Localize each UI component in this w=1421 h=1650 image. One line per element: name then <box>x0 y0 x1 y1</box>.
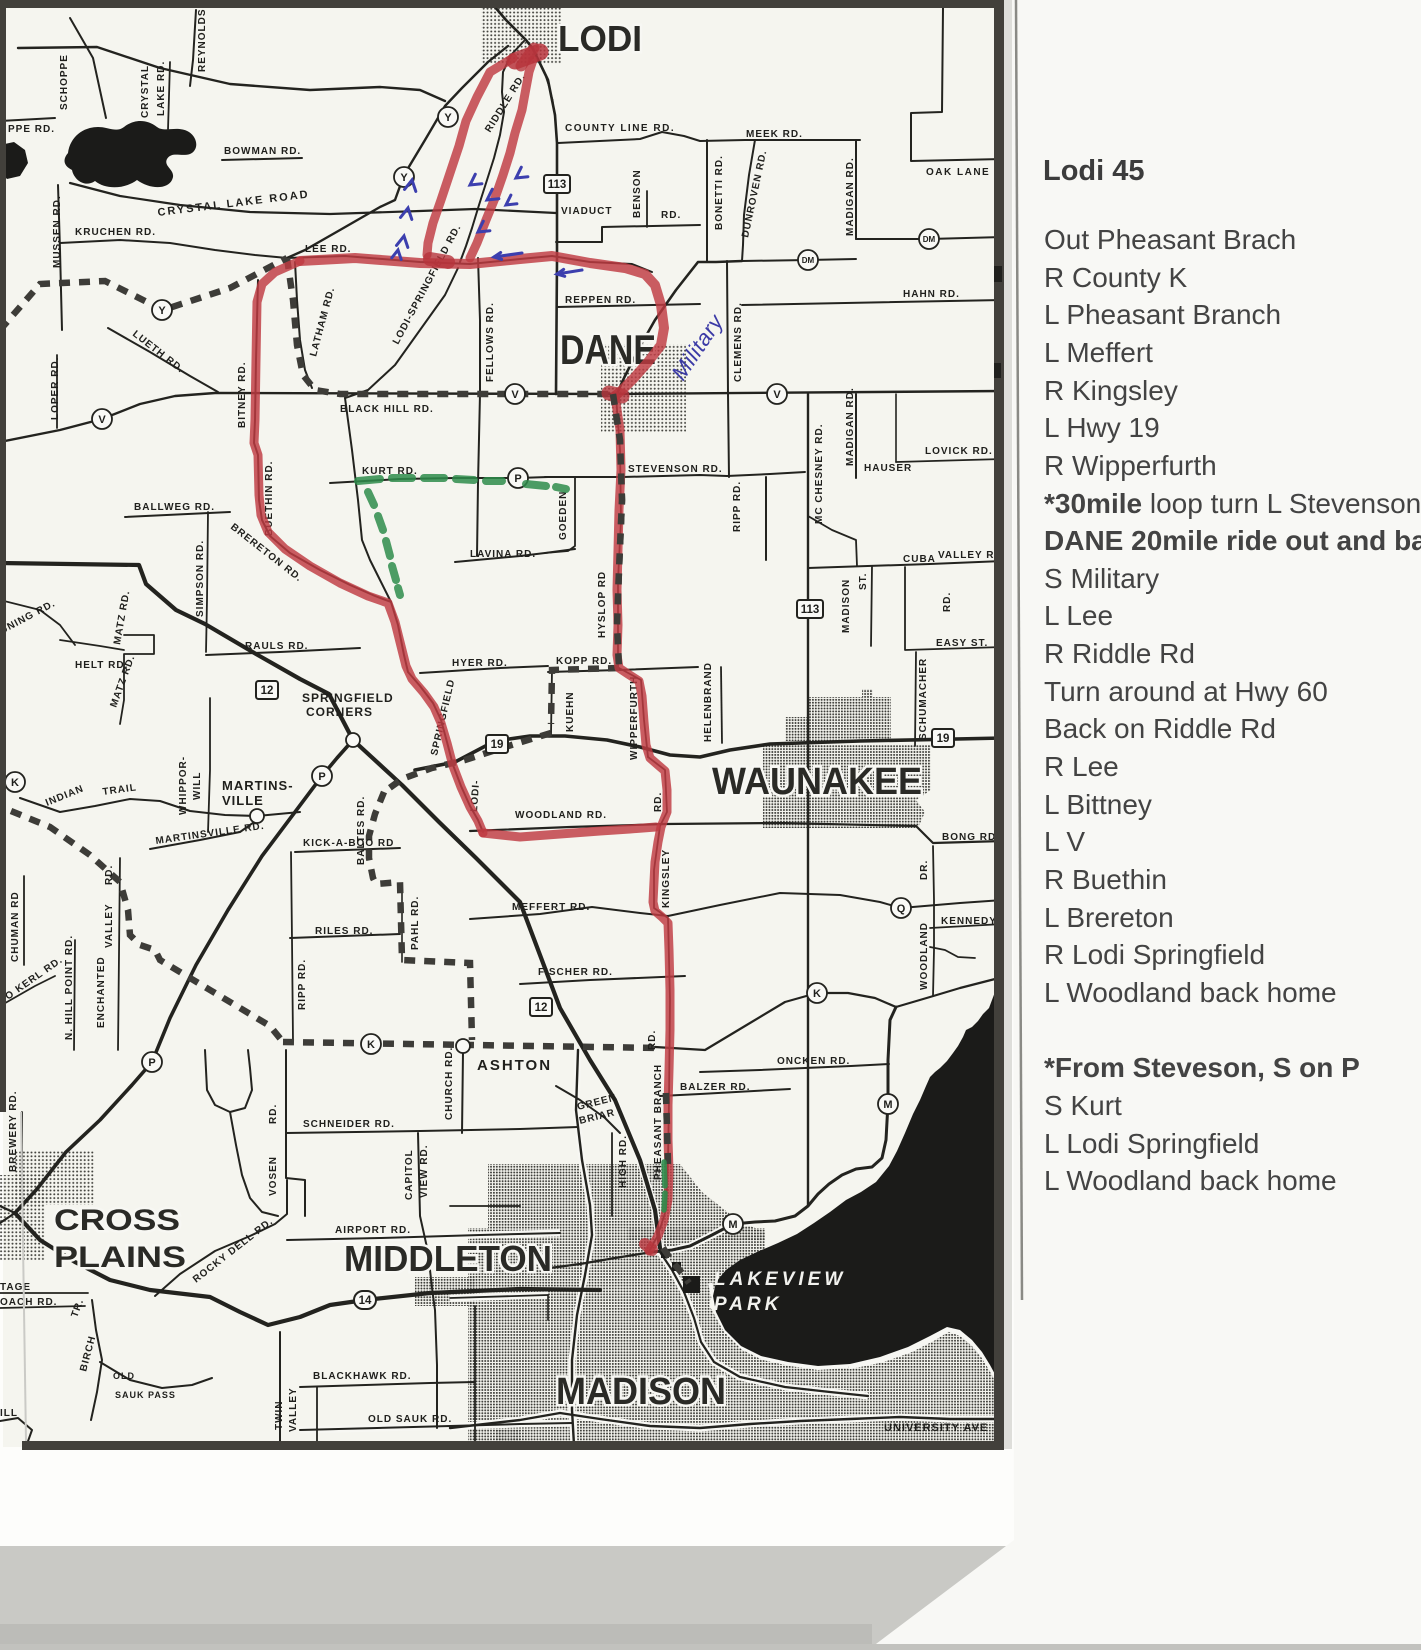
svg-text:MC CHESNEY RD.: MC CHESNEY RD. <box>814 424 825 525</box>
svg-text:DM: DM <box>923 235 936 244</box>
svg-text:CHUMAN RD: CHUMAN RD <box>10 891 21 962</box>
svg-text:HELT RD.: HELT RD. <box>75 660 128 671</box>
svg-text:Y: Y <box>400 172 408 184</box>
svg-text:HAUSER: HAUSER <box>864 463 912 474</box>
svg-text:FELLOWS RD.: FELLOWS RD. <box>485 302 496 382</box>
svg-text:M: M <box>883 1099 892 1111</box>
svg-text:SAUK PASS: SAUK PASS <box>115 1390 176 1400</box>
svg-text:L Lodi Springfield: L Lodi Springfield <box>1044 1128 1259 1159</box>
svg-text:RD.: RD. <box>268 1104 279 1124</box>
svg-text:KICK-A-BOO RD: KICK-A-BOO RD <box>303 838 394 849</box>
svg-text:LOPER RD.: LOPER RD. <box>50 357 61 420</box>
svg-text:BALLWEG RD.: BALLWEG RD. <box>134 502 215 513</box>
svg-text:L Hwy 19: L Hwy 19 <box>1044 412 1160 443</box>
svg-text:PARK: PARK <box>714 1294 782 1315</box>
svg-text:*From Steveson, S on P: *From Steveson, S on P <box>1044 1052 1360 1083</box>
svg-text:MEFFERT RD.: MEFFERT RD. <box>512 902 590 913</box>
svg-text:BONETTI RD.: BONETTI RD. <box>714 155 725 230</box>
svg-text:FISCHER RD.: FISCHER RD. <box>538 967 613 978</box>
svg-text:BALZER RD.: BALZER RD. <box>680 1082 751 1093</box>
svg-text:Back on Riddle Rd: Back on Riddle Rd <box>1044 713 1276 744</box>
svg-text:14: 14 <box>359 1295 372 1307</box>
svg-text:RD.: RD. <box>942 592 953 612</box>
svg-text:REYNOLDS: REYNOLDS <box>197 8 208 72</box>
svg-text:L Woodland back home: L Woodland back home <box>1044 1165 1337 1196</box>
svg-text:113: 113 <box>548 179 567 191</box>
svg-text:MADISON: MADISON <box>556 1371 726 1413</box>
svg-text:GOEDEN: GOEDEN <box>558 491 569 540</box>
svg-text:AIRPORT RD.: AIRPORT RD. <box>335 1225 411 1236</box>
svg-text:L Lee: L Lee <box>1044 600 1113 631</box>
svg-text:WHIPPOR-: WHIPPOR- <box>178 756 189 815</box>
svg-text:KRUCHEN RD.: KRUCHEN RD. <box>75 227 156 238</box>
svg-text:MADIGAN RD.: MADIGAN RD. <box>845 387 856 466</box>
svg-text:WOODLAND: WOODLAND <box>919 922 930 990</box>
svg-text:PLAINS: PLAINS <box>54 1241 186 1274</box>
svg-text:L Woodland back home: L Woodland back home <box>1044 977 1337 1008</box>
svg-text:S Military: S Military <box>1044 563 1159 594</box>
svg-text:ILL: ILL <box>0 1408 18 1419</box>
svg-text:SPRINGFIELD: SPRINGFIELD <box>302 691 394 705</box>
svg-text:OACH RD.: OACH RD. <box>0 1297 57 1308</box>
svg-text:ONCKEN RD.: ONCKEN RD. <box>777 1056 850 1067</box>
svg-text:RIPP RD.: RIPP RD. <box>297 959 308 1010</box>
svg-text:STEVENSON RD.: STEVENSON RD. <box>628 464 723 475</box>
svg-text:SCHOPPE: SCHOPPE <box>59 54 70 110</box>
svg-text:SIMPSON RD.: SIMPSON RD. <box>195 540 206 617</box>
svg-text:DR.: DR. <box>919 860 930 880</box>
svg-text:BLACK HILL RD.: BLACK HILL RD. <box>340 404 434 415</box>
svg-text:HELENBRAND: HELENBRAND <box>703 662 714 742</box>
svg-text:VALLEY: VALLEY <box>104 903 115 948</box>
svg-text:MEEK RD.: MEEK RD. <box>746 129 803 140</box>
svg-text:*30mile loop turn L Stevenson: *30mile loop turn L Stevenson <box>1044 488 1421 519</box>
svg-text:CRYSTAL: CRYSTAL <box>140 65 151 118</box>
svg-text:Turn around at Hwy 60: Turn around at Hwy 60 <box>1044 676 1328 707</box>
svg-text:K: K <box>813 988 821 1000</box>
svg-text:R Buethin: R Buethin <box>1044 864 1167 895</box>
svg-text:REPPEN RD.: REPPEN RD. <box>565 295 636 306</box>
svg-text:HIGH RD.: HIGH RD. <box>618 1135 629 1188</box>
svg-text:PAHL RD.: PAHL RD. <box>410 896 421 950</box>
svg-text:RIPP RD.: RIPP RD. <box>732 481 743 532</box>
svg-text:L Bittney: L Bittney <box>1044 789 1152 820</box>
svg-text:R Riddle Rd: R Riddle Rd <box>1044 638 1195 669</box>
svg-text:V: V <box>511 389 519 401</box>
svg-text:BREWERY RD.: BREWERY RD. <box>8 1090 19 1172</box>
svg-text:DANE 20mile ride out and back: DANE 20mile ride out and back <box>1044 525 1421 556</box>
svg-text:L Brereton: L Brereton <box>1044 902 1174 933</box>
svg-text:L Pheasant Branch: L Pheasant Branch <box>1044 299 1281 330</box>
svg-text:KENNEDY: KENNEDY <box>941 916 997 927</box>
svg-text:R County K: R County K <box>1044 262 1187 293</box>
svg-text:12: 12 <box>535 1002 548 1014</box>
svg-text:UNIVERSITY AVE: UNIVERSITY AVE <box>884 1422 988 1434</box>
svg-text:MIDDLETON: MIDDLETON <box>344 1238 552 1279</box>
svg-text:N. HILL POINT RD.: N. HILL POINT RD. <box>64 935 75 1040</box>
svg-text:RD.: RD. <box>647 1030 658 1050</box>
svg-text:ST.: ST. <box>858 573 869 590</box>
svg-text:Y: Y <box>444 112 452 124</box>
svg-text:LOVICK RD.: LOVICK RD. <box>925 446 993 457</box>
svg-text:V: V <box>773 389 781 401</box>
svg-text:R Kingsley: R Kingsley <box>1044 375 1178 406</box>
svg-text:CORNERS: CORNERS <box>306 705 373 719</box>
svg-text:LAKEVIEW: LAKEVIEW <box>714 1269 846 1290</box>
svg-text:BALTES RD.: BALTES RD. <box>356 796 367 865</box>
svg-text:DM: DM <box>802 256 815 265</box>
svg-text:MADISON: MADISON <box>841 579 852 633</box>
svg-text:TWIN: TWIN <box>274 1400 285 1430</box>
svg-text:K: K <box>11 777 19 789</box>
svg-text:OLD SAUK RD.: OLD SAUK RD. <box>368 1414 452 1425</box>
svg-text:BITNEY RD.: BITNEY RD. <box>237 362 248 429</box>
svg-text:MARTINS-: MARTINS- <box>222 778 294 793</box>
svg-text:MADIGAN RD.: MADIGAN RD. <box>845 157 856 236</box>
svg-text:VIADUCT: VIADUCT <box>561 206 612 217</box>
svg-text:Lodi 45: Lodi 45 <box>1043 155 1145 187</box>
svg-text:BENSON: BENSON <box>632 169 643 218</box>
svg-text:LODI: LODI <box>558 18 642 59</box>
svg-text:WOODLAND RD.: WOODLAND RD. <box>515 810 607 821</box>
svg-text:COUNTY LINE RD.: COUNTY LINE RD. <box>565 123 675 134</box>
svg-text:RD.: RD. <box>104 865 115 885</box>
svg-text:Q: Q <box>897 903 906 915</box>
svg-text:CLEMENS RD.: CLEMENS RD. <box>733 302 744 382</box>
svg-text:M: M <box>728 1219 737 1231</box>
svg-text:BONG RD: BONG RD <box>942 832 996 843</box>
svg-text:KOPP RD.: KOPP RD. <box>556 656 612 667</box>
svg-text:R Lodi Springfield: R Lodi Springfield <box>1044 939 1265 970</box>
svg-text:MUSSEN RD.: MUSSEN RD. <box>52 195 63 268</box>
svg-text:VALLEY: VALLEY <box>288 1387 299 1432</box>
svg-text:LAKE RD.: LAKE RD. <box>156 61 167 116</box>
svg-text:HYSLOP RD: HYSLOP RD <box>597 571 608 638</box>
svg-text:R Wipperfurth: R Wipperfurth <box>1044 450 1217 481</box>
svg-text:RD.: RD. <box>653 792 664 812</box>
svg-text:V: V <box>98 414 106 426</box>
svg-text:L Meffert: L Meffert <box>1044 337 1153 368</box>
svg-text:EASY ST.: EASY ST. <box>936 638 988 649</box>
svg-text:OLD: OLD <box>113 1371 135 1381</box>
svg-text:LEE RD.: LEE RD. <box>305 244 351 255</box>
svg-text:CUBA: CUBA <box>903 554 936 565</box>
svg-text:WAUNAKEE: WAUNAKEE <box>712 761 922 803</box>
svg-text:RD.: RD. <box>661 210 681 221</box>
svg-text:HAHN RD.: HAHN RD. <box>903 289 960 300</box>
svg-text:BLACKHAWK RD.: BLACKHAWK RD. <box>313 1371 412 1382</box>
svg-text:19: 19 <box>937 733 950 745</box>
svg-text:RAULS RD.: RAULS RD. <box>245 641 308 652</box>
svg-text:CHURCH RD.: CHURCH RD. <box>444 1047 455 1120</box>
svg-text:VIEW RD.: VIEW RD. <box>419 1144 430 1198</box>
svg-text:Y: Y <box>158 305 166 317</box>
svg-text:KINGSLEY: KINGSLEY <box>661 849 672 908</box>
svg-text:ASHTON: ASHTON <box>477 1057 552 1074</box>
svg-text:OAK LANE: OAK LANE <box>926 167 990 178</box>
svg-text:K: K <box>367 1039 375 1051</box>
svg-text:R Lee: R Lee <box>1044 751 1119 782</box>
svg-text:RILES RD.: RILES RD. <box>315 926 373 937</box>
svg-text:ENCHANTED: ENCHANTED <box>96 956 107 1028</box>
svg-text:BOWMAN RD.: BOWMAN RD. <box>224 146 301 157</box>
svg-text:PPE RD.: PPE RD. <box>8 124 55 135</box>
svg-text:VILLE: VILLE <box>222 793 264 808</box>
svg-text:WILL: WILL <box>192 772 203 800</box>
svg-text:19: 19 <box>491 739 504 751</box>
svg-text:Out Pheasant Brach: Out Pheasant Brach <box>1044 224 1296 255</box>
svg-text:TAGE: TAGE <box>0 1282 31 1293</box>
svg-text:P: P <box>148 1057 155 1069</box>
svg-text:SCHUMACHER: SCHUMACHER <box>918 658 929 740</box>
svg-text:CROSS: CROSS <box>54 1204 180 1237</box>
svg-text:12: 12 <box>261 685 274 697</box>
svg-text:S Kurt: S Kurt <box>1044 1090 1122 1121</box>
svg-text:LAVINA RD.: LAVINA RD. <box>470 549 536 560</box>
svg-text:VOSEN: VOSEN <box>268 1156 279 1196</box>
svg-text:SCHNEIDER RD.: SCHNEIDER RD. <box>303 1119 395 1130</box>
svg-text:L V: L V <box>1044 826 1085 857</box>
svg-text:HYER RD.: HYER RD. <box>452 658 508 669</box>
svg-text:CAPITOL: CAPITOL <box>404 1149 415 1200</box>
svg-text:P: P <box>514 473 521 485</box>
svg-text:P: P <box>318 771 325 783</box>
svg-text:KUEHN: KUEHN <box>565 691 576 732</box>
svg-text:113: 113 <box>801 604 820 616</box>
